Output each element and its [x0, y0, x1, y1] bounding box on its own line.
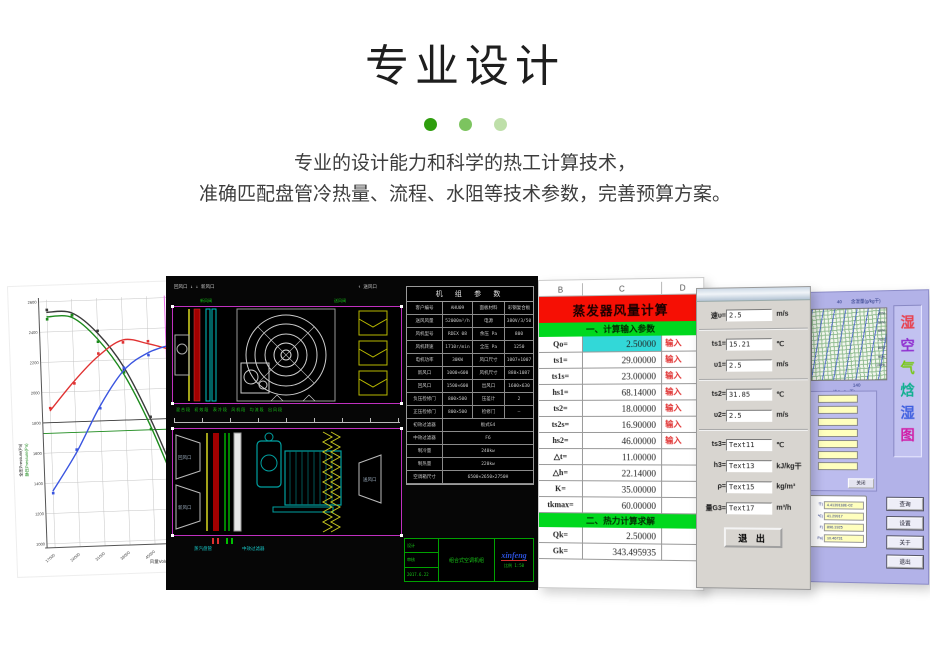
sheet-row: △t=11.00000	[539, 449, 703, 466]
form-field-unit: ℃	[776, 441, 784, 449]
sheet-cell-value: 23.00000	[583, 368, 662, 384]
param-cell: 1600×630	[505, 380, 533, 392]
form-field-unit: m/s	[776, 361, 788, 368]
param-cell: 彩钢复合板	[505, 302, 533, 314]
cad-valve-label-right: 送风阀	[334, 298, 346, 304]
cad-bottom-label-2: 中效过滤器	[242, 546, 265, 552]
sheet-cell-label: Qk=	[539, 527, 583, 543]
param-cell: 风机尺寸	[473, 367, 505, 379]
plan-inlet-top-label: 回风口	[178, 455, 192, 461]
page-title: 专业设计	[0, 30, 930, 94]
psy-humidity-label: 含湿量(g/kg干)	[851, 298, 881, 305]
form-field-row: υ1=2.5m/s	[699, 357, 807, 373]
param-cell: 30KW	[443, 354, 473, 366]
param-table-row: 正压检修门800×500检修门—	[407, 406, 533, 419]
form-field-input[interactable]: Text15	[726, 481, 772, 493]
param-cell: 风机转速	[407, 341, 443, 353]
tick-green-1	[226, 538, 228, 544]
rh-tick-label: 100%	[869, 363, 885, 367]
sheet-cell-value: 22.14000	[583, 465, 662, 481]
form-field-unit: m³/h	[776, 505, 791, 512]
unit-parameters-table: 机 组 参 数 客户编号AHU09面板材料彩钢复合板送风风量52000m³/h电…	[406, 286, 534, 485]
sheet-cell-label: ts1=	[539, 353, 583, 368]
psy-button-退出[interactable]: 退出	[887, 555, 923, 568]
form-field-label: ts2=	[699, 391, 726, 398]
param-table-row: 空调箱尺寸6500×2650×2750H	[407, 471, 533, 484]
param-cell: 1000×600	[443, 367, 473, 379]
svg-text:24000: 24000	[69, 551, 81, 562]
psy-result-row: ℃)41.29917	[812, 510, 864, 522]
form-field-input[interactable]: Text17	[726, 502, 772, 514]
psy-result-row: 干)4.4139118E-02	[812, 499, 864, 511]
psy-result-label: 干)	[812, 502, 824, 507]
sheet-row: tkmax=60.00000	[539, 497, 703, 515]
title-char: 湿	[900, 315, 914, 334]
form-field-label: υ1=	[699, 362, 726, 369]
col-header-c: C	[583, 282, 662, 296]
fan-curve-chart: 1000120014001600180020002200240026001700…	[7, 280, 191, 578]
psy-input-field[interactable]	[818, 429, 858, 437]
param-cell: 240kw	[443, 445, 533, 457]
psy-x140-label: 140	[853, 383, 861, 388]
param-cell: 800×500	[443, 393, 473, 405]
title-char: 焓	[900, 383, 914, 402]
sheet-cell-label: ts2s=	[539, 417, 583, 432]
curve-全压	[47, 307, 178, 486]
param-cell: 出风口	[473, 380, 505, 392]
param-cell: 面板材料	[473, 302, 505, 314]
sheet-cell-value: 2.50000	[583, 527, 662, 543]
sheet-cell-value: 18.00000	[583, 401, 662, 416]
form-field-label: 量G3=	[699, 503, 726, 513]
title-dot	[424, 118, 437, 131]
param-cell: 电机功率	[407, 354, 443, 366]
param-cell: 220kw	[443, 458, 533, 470]
form-field-label: 速υ=	[699, 310, 726, 320]
sheet-cell-value: 343.495935	[583, 544, 662, 560]
param-table-row: 新风口1000×600风机尺寸880×1087	[407, 367, 533, 380]
spreadsheet-panel: B C D 蒸发器风量计算 一、计算输入参数 Qo=2.50000输入ts1=2…	[538, 277, 704, 591]
param-cell: 正压检修门	[407, 406, 443, 418]
psy-result-label: F)	[812, 525, 824, 529]
sheet-row: ts1s=23.00000输入	[539, 368, 703, 385]
psy-result-label: Pa)	[812, 536, 824, 540]
page-description: 专业的设计能力和科学的热工计算技术， 准确匹配盘管冷热量、流程、水阻等技术参数，…	[0, 148, 930, 210]
sheet-row: ts2=18.00000输入	[539, 400, 703, 417]
sheet-row: △h=22.14000	[539, 465, 703, 482]
param-cell: 1250	[505, 341, 533, 353]
sheet-cell-label: K=	[539, 481, 583, 496]
sheet-title-banner: 蒸发器风量计算	[539, 294, 703, 323]
psy-results-groupbox: 干)4.4139118E-02℃)41.29917F)896.1925Pa)10…	[809, 495, 867, 548]
form-field-row: h3=Text13kJ/kg干	[699, 458, 807, 473]
col-header-b: B	[539, 283, 583, 297]
title-char: 图	[900, 428, 914, 446]
ahu-plan-view: 回风口 新风口	[173, 429, 401, 535]
tb-design: 设计	[405, 539, 438, 553]
param-cell: 880×1087	[505, 367, 533, 379]
psy-rh-tick-labels: 40%50%60%70%80%90%100%	[869, 311, 885, 367]
desc-line-2: 准确匹配盘管冷热量、流程、水阻等技术参数，完善预算方案。	[199, 184, 731, 205]
form-field-row: ts2=31.85℃	[699, 386, 807, 402]
param-cell: —	[505, 406, 533, 418]
param-table-row: 风机转速1710r/min全压 Pa1250	[407, 341, 533, 354]
form-field-input[interactable]: Text13	[726, 460, 772, 472]
form-title-bar	[697, 287, 810, 302]
unit-parameters-title: 机 组 参 数	[407, 287, 533, 302]
param-cell: AHU09	[443, 302, 473, 314]
sheet-cell-label: ts2=	[539, 401, 583, 416]
plan-outlet-label: 送风口	[363, 476, 377, 483]
plan-inlet-bottom-label: 新风口	[178, 504, 192, 511]
param-cell: 压差计	[473, 393, 505, 405]
psy-result-value: 10.46731	[824, 534, 864, 543]
rh-tick-label: 60%	[869, 329, 885, 333]
psy-input-field[interactable]	[818, 462, 858, 470]
cad-dimension-line	[174, 418, 400, 423]
sheet-row: Qo=2.50000输入	[539, 335, 703, 353]
form-field-label: υ2=	[699, 412, 726, 419]
spreadsheet-column-headers: B C D	[539, 281, 703, 297]
param-cell: 1500×600	[443, 380, 473, 392]
param-cell: 制冷量	[407, 445, 443, 457]
param-cell: 客户编号	[407, 302, 443, 314]
svg-text:1400: 1400	[34, 481, 44, 486]
sheet-cell-value: 16.90000	[583, 417, 662, 432]
rh-tick-label: 40%	[869, 311, 885, 315]
psy-button-设置[interactable]: 设置	[887, 517, 923, 530]
sheet-row: hs2=46.00000输入	[539, 433, 703, 449]
param-table-row: 风机型号RDEX 08余压 Pa800	[407, 328, 533, 341]
form-field-unit: ℃	[776, 339, 784, 347]
param-cell: 余压 Pa	[473, 328, 505, 340]
tb-drawing-name: 组合式空调机组	[439, 539, 495, 581]
form-field-label: ts3=	[699, 441, 726, 448]
sheet-cell-value: 11.00000	[583, 449, 662, 464]
param-cell: 负压检修门	[407, 393, 443, 405]
svg-text:17000: 17000	[44, 552, 56, 563]
cad-side-view-drawing	[172, 306, 402, 404]
sheet-row: hs1=68.14000输入	[539, 384, 703, 401]
cad-top-right-label: ↑ 送风口	[358, 284, 377, 290]
title-dot	[494, 118, 507, 131]
sheet-cell-value: 46.00000	[583, 433, 662, 448]
param-cell: 800×500	[443, 406, 473, 418]
form-field-row: ts1=15.21℃	[699, 336, 807, 352]
psy-close-button[interactable]: 关闭	[848, 478, 874, 488]
param-cell: 检修门	[473, 406, 505, 418]
param-table-row: 初效过滤器板式G4	[407, 419, 533, 432]
sheet-cell-label: Gk=	[539, 543, 583, 559]
param-cell: 2	[505, 393, 533, 405]
form-field-row: ρ=Text15kg/m³	[699, 479, 807, 495]
sheet-row: Gk=343.495935	[539, 543, 703, 561]
form-field-row: 量G3=Text17m³/h	[699, 500, 807, 516]
svg-text:2600: 2600	[28, 300, 38, 305]
psy-result-row: Pa)10.46731	[812, 532, 864, 544]
svg-text:1200: 1200	[35, 511, 45, 516]
psy-result-value: 41.29917	[824, 512, 864, 521]
cad-bottom-label-1: 蒸汽盘管	[194, 546, 212, 552]
curve-效率	[48, 344, 178, 490]
param-cell: 送风风量	[407, 315, 443, 327]
curve-静压	[47, 312, 178, 495]
param-cell: 52000m³/h	[443, 315, 473, 327]
tb-date: 2017.6.22	[405, 568, 438, 581]
title-dot	[459, 118, 472, 131]
form-separator	[699, 378, 808, 381]
sheet-cell-value: 29.00000	[583, 352, 662, 368]
rh-tick-label: 90%	[869, 354, 885, 358]
form-field-input[interactable]: Text11	[726, 439, 772, 451]
param-cell: 回风口	[407, 380, 443, 392]
param-cell: 初效过滤器	[407, 419, 443, 431]
tb-scale: 比例 1:50	[504, 563, 524, 569]
rh-tick-label: 80%	[869, 346, 885, 350]
svg-text:31000: 31000	[94, 550, 106, 561]
svg-text:2000: 2000	[31, 390, 41, 395]
form-field-unit: m/s	[776, 311, 788, 318]
form-field-input[interactable]: 2.5	[726, 409, 772, 421]
param-cell: 制热量	[407, 458, 443, 470]
param-cell: 6500×2650×2750H	[443, 471, 533, 483]
cad-title-block: 设计 审核 2017.6.22 组合式空调机组 xinfeng 比例 1:50	[404, 538, 534, 582]
svg-text:1000: 1000	[36, 541, 46, 546]
psy-input-subwindow: 关闭	[809, 390, 877, 491]
form-field-label: h3=	[699, 462, 726, 469]
tb-check: 审核	[405, 553, 438, 567]
psy-input-field[interactable]	[818, 440, 858, 448]
svg-text:1800: 1800	[32, 421, 42, 426]
desc-line-1: 专业的设计能力和科学的热工计算技术，	[294, 153, 636, 174]
param-table-row: 送风风量52000m³/h电源380V/3/50	[407, 315, 533, 328]
psychrometric-app: 40 含湿量(g/kg干) 40%50%60%70%80%90%100% 140…	[806, 289, 929, 585]
param-cell: 空调箱尺寸	[407, 471, 443, 483]
param-table-row: 客户编号AHU09面板材料彩钢复合板	[407, 302, 533, 315]
psy-result-row: F)896.1925	[812, 521, 864, 533]
sheet-cell-value: 68.14000	[583, 384, 662, 400]
sheet-cell-label: hs2=	[539, 433, 583, 448]
psy-result-value: 896.1925	[824, 523, 864, 532]
tick-red-1	[212, 538, 214, 544]
form-separator	[699, 328, 808, 331]
form-field-unit: ℃	[776, 390, 784, 398]
form-field-unit: kJ/kg干	[776, 461, 801, 471]
param-cell: 1710r/min	[443, 341, 473, 353]
param-cell: 800	[505, 328, 533, 340]
form-field-input[interactable]: 2.5	[726, 359, 772, 371]
company-logo: xinfeng	[501, 551, 526, 561]
form-exit-button[interactable]: 退 出	[724, 527, 782, 548]
sheet-cell-value: 60.00000	[583, 497, 662, 513]
psy-input-field[interactable]	[818, 406, 858, 414]
param-table-row: 电机功率30KW风口尺寸1007×1007	[407, 354, 533, 367]
title-dots	[0, 118, 930, 132]
form-separator	[699, 429, 808, 431]
cad-sections-label: 混合段 初效段 表冷段 风机段 均流段 出风段	[176, 407, 283, 413]
fan-curve-svg: 1000120014001600180020002200240026001700…	[8, 281, 192, 579]
form-field-input[interactable]: 15.21	[726, 338, 772, 351]
form-field-row: υ2=2.5m/s	[699, 408, 807, 423]
param-cell: 风机型号	[407, 328, 443, 340]
rh-tick-label: 70%	[869, 337, 885, 341]
sheet-cell-label: ts1s=	[539, 369, 583, 384]
param-table-row: 回风口1500×600出风口1600×630	[407, 380, 533, 393]
param-cell: 380V/3/50	[505, 315, 533, 327]
psy-buttons-column: 查询设置关于退出	[887, 498, 923, 569]
svg-text:2400: 2400	[29, 330, 39, 335]
y-axis-label-secondary: 静压Pressure(Pa)	[22, 443, 30, 477]
form-field-label: ts1=	[699, 341, 726, 348]
psy-button-查询[interactable]: 查询	[887, 498, 923, 511]
svg-text:2200: 2200	[30, 360, 40, 365]
psy-button-关于[interactable]: 关于	[887, 536, 923, 549]
param-cell: 新风口	[407, 367, 443, 379]
param-cell: 风口尺寸	[473, 354, 505, 366]
param-table-row: 制冷量240kw	[407, 445, 533, 458]
svg-text:38000: 38000	[119, 549, 131, 560]
psy-x40-label: 40	[837, 299, 842, 304]
tick-green-2	[231, 538, 233, 544]
psy-app-vertical-title: 湿空气焓湿图	[893, 305, 922, 458]
form-field-row: ts3=Text11℃	[699, 437, 807, 452]
param-cell: 板式G4	[443, 419, 533, 431]
title-char: 空	[900, 338, 914, 357]
ahu-side-view	[173, 307, 401, 403]
psy-input-field[interactable]	[818, 417, 858, 425]
param-table-row: 中效过滤器F6	[407, 432, 533, 445]
sheet-cell-label: △h=	[539, 465, 583, 480]
param-cell: F6	[443, 432, 533, 444]
sheet-cell-label: tkmax=	[539, 497, 583, 512]
param-cell: 全压 Pa	[473, 341, 505, 353]
sheet-row: ts2s=16.90000输入	[539, 417, 703, 433]
form-field-input[interactable]: 31.85	[726, 388, 772, 400]
cad-valve-label-left: 新风阀	[200, 298, 212, 304]
sheet-cell-value: 2.50000	[583, 336, 662, 352]
psy-result-label: ℃)	[812, 514, 824, 518]
title-char: 气	[900, 361, 914, 380]
svg-text:1600: 1600	[33, 451, 43, 456]
calc-form-window: 速υ=2.5m/sts1=15.21℃υ1=2.5m/sts2=31.85℃υ2…	[696, 286, 811, 590]
cad-drawing-panel: 回风口 ↓ ↓ 新风口 ↑ 送风口 新风阀 送风阀	[166, 276, 538, 590]
psy-result-value: 4.4139118E-02	[824, 501, 864, 509]
rh-tick-label: 50%	[869, 320, 885, 324]
sheet-row: K=35.00000	[539, 481, 703, 498]
sheet-cell-label: Qo=	[539, 336, 583, 352]
psy-input-field[interactable]	[818, 395, 858, 403]
param-cell: 中效过滤器	[407, 432, 443, 444]
param-table-row: 负压检修门800×500压差计2	[407, 393, 533, 406]
sheet-cell-label: hs1=	[539, 385, 583, 400]
sheet-cell-value: 35.00000	[583, 481, 662, 497]
form-field-row: 速υ=2.5m/s	[699, 306, 807, 323]
title-char: 湿	[900, 406, 914, 425]
form-field-input[interactable]: 2.5	[726, 308, 772, 321]
cad-plan-view-drawing: 回风口 新风口	[172, 428, 402, 536]
sheet-cell-label: △t=	[539, 449, 583, 464]
param-cell: 电源	[473, 315, 505, 327]
param-cell: RDEX 08	[443, 328, 473, 340]
form-field-unit: m/s	[776, 412, 788, 419]
psy-input-field[interactable]	[818, 451, 858, 459]
cad-top-left-label: 回风口 ↓ ↓ 新风口	[174, 284, 215, 290]
form-field-label: ρ=	[699, 483, 726, 490]
tick-red-2	[217, 538, 219, 544]
param-table-row: 制热量220kw	[407, 458, 533, 471]
sheet-row: ts1=29.00000输入	[539, 351, 703, 369]
form-field-unit: kg/m³	[776, 483, 795, 490]
param-cell: 1007×1007	[505, 354, 533, 366]
